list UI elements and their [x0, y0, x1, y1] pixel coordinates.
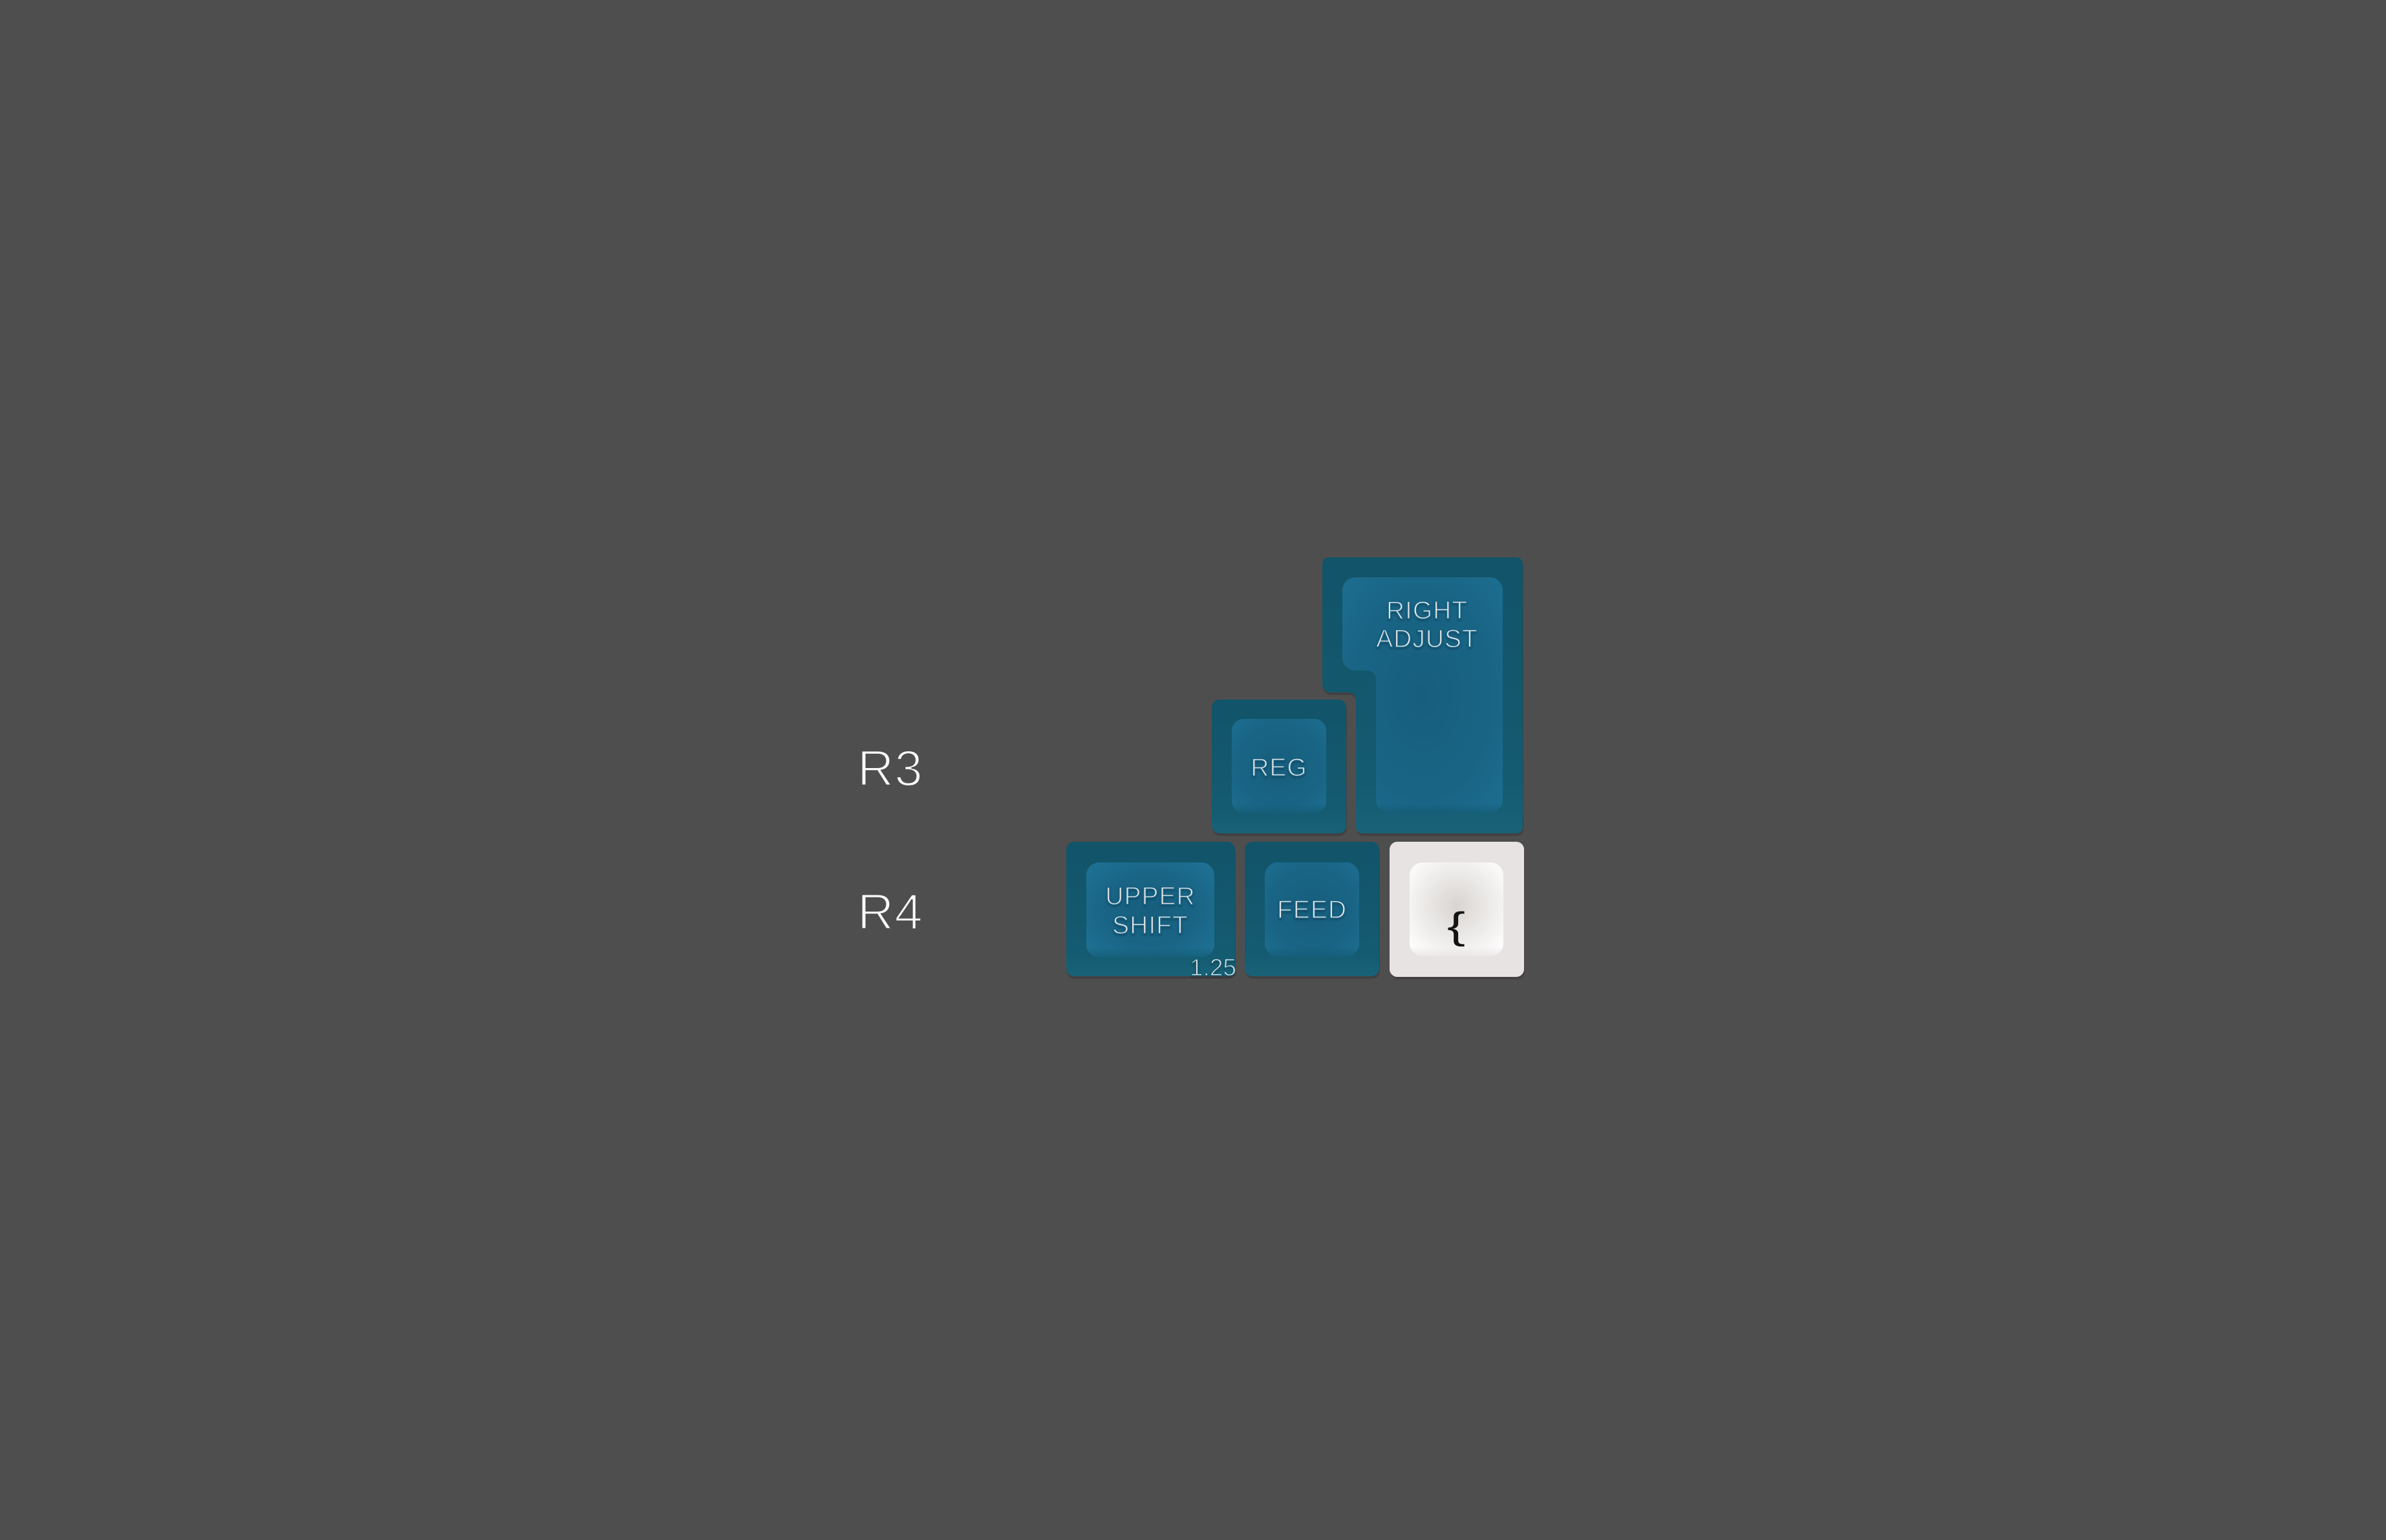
svg-text:UPPER: UPPER [1105, 882, 1195, 910]
svg-text:{: { [1447, 906, 1465, 947]
svg-text:REG: REG [1251, 754, 1307, 782]
svg-text:RIGHT: RIGHT [1386, 597, 1468, 625]
svg-text:1.25: 1.25 [1190, 954, 1236, 981]
svg-text:R4: R4 [857, 883, 923, 940]
svg-text:FEED: FEED [1277, 896, 1347, 924]
svg-text:R3: R3 [857, 740, 923, 797]
svg-text:SHIFT: SHIFT [1112, 912, 1188, 939]
svg-text:ADJUST: ADJUST [1376, 625, 1478, 653]
